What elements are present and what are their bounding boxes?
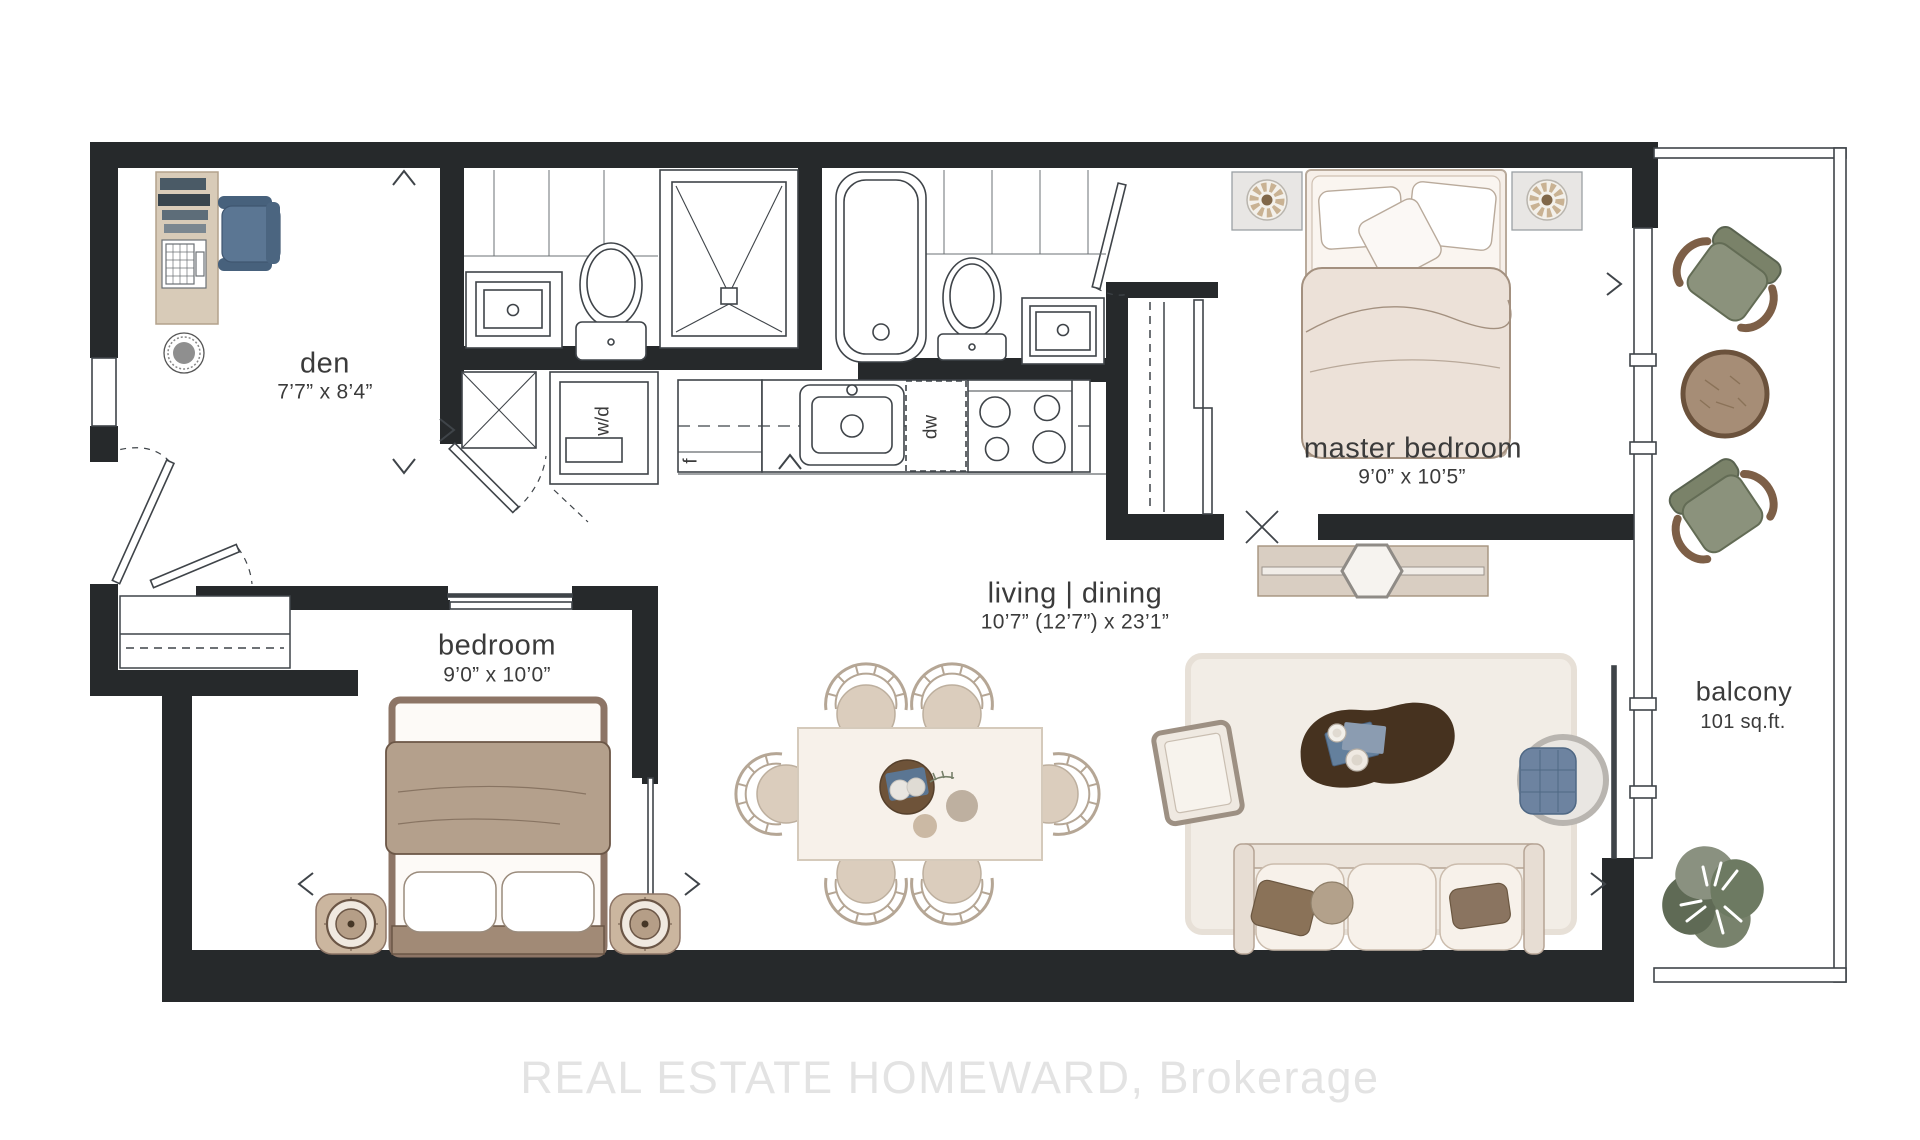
balcony-table	[1683, 352, 1767, 436]
dining-set	[736, 664, 1099, 924]
balcony-slider	[1612, 666, 1616, 858]
accent-chair	[1153, 721, 1244, 825]
dishwasher-label: dw	[922, 415, 941, 439]
entry-closet	[120, 596, 290, 668]
room-label-balcony: balcony	[1696, 679, 1793, 706]
laundry-area	[462, 372, 658, 484]
bathroom-2-tiles	[926, 170, 1106, 254]
room-label-den: den	[300, 350, 350, 379]
fridge-label: f	[682, 458, 701, 463]
balcony-chair	[1654, 447, 1782, 567]
shower	[660, 170, 798, 348]
floor-plan-graphics	[0, 0, 1920, 1140]
master-bed	[1302, 170, 1511, 458]
stool	[164, 333, 204, 373]
bedroom-furniture	[316, 700, 680, 954]
room-label-master-bedroom: master bedroom	[1304, 435, 1522, 464]
decor-flower	[1247, 180, 1287, 220]
linen-closet	[462, 372, 536, 448]
window-wall	[1634, 228, 1652, 858]
ensuite-door	[1092, 183, 1126, 289]
den-window	[92, 358, 116, 426]
sofa	[1234, 844, 1544, 954]
stove	[968, 380, 1072, 472]
entry-door	[112, 460, 174, 584]
bathroom-1-fixtures	[466, 170, 798, 360]
room-label-living-dining: living | dining	[988, 580, 1163, 609]
room-dims-living-dining: 10’7” (12’7”) x 23’1”	[981, 612, 1169, 633]
floor-plan: den 7’7” x 8’4” bedroom 9’0” x 10’0” mas…	[0, 0, 1920, 1140]
armchair	[1520, 737, 1606, 823]
books	[158, 178, 210, 233]
bedroom-slider-panel	[450, 602, 572, 609]
bathroom-door	[449, 443, 518, 512]
bedroom-slider-track	[448, 594, 572, 597]
den-furniture	[156, 172, 280, 373]
balcony-area	[1654, 148, 1846, 982]
room-dims-balcony: 101 sq.ft.	[1700, 712, 1785, 732]
room-dims-den: 7’7” x 8’4”	[277, 382, 373, 403]
hall-closet-door	[150, 544, 239, 587]
decor-flower	[1527, 180, 1567, 220]
office-chair	[218, 196, 280, 271]
bedroom-bed	[386, 700, 610, 954]
closet-slider-2	[1203, 408, 1212, 514]
balcony-chair	[1668, 215, 1797, 337]
living-set	[1153, 656, 1606, 954]
washer-dryer-label: w/d	[594, 406, 613, 436]
plant	[1655, 839, 1770, 954]
master-closet	[1150, 302, 1164, 512]
kitchen	[678, 380, 1106, 474]
room-label-bedroom: bedroom	[438, 632, 556, 661]
room-dims-master-bedroom: 9’0” x 10’5”	[1358, 467, 1465, 488]
room-dims-bedroom: 9’0” x 10’0”	[443, 665, 550, 686]
master-door-marker	[1246, 511, 1278, 543]
laptop	[162, 240, 206, 288]
wd-door-swing	[554, 490, 588, 522]
brokerage-watermark: REAL ESTATE HOMEWARD, Brokerage	[520, 1052, 1379, 1104]
bathroom-2-fixtures	[836, 172, 1104, 364]
closet-slider-1	[1194, 300, 1203, 408]
console-mirror	[1258, 545, 1488, 597]
